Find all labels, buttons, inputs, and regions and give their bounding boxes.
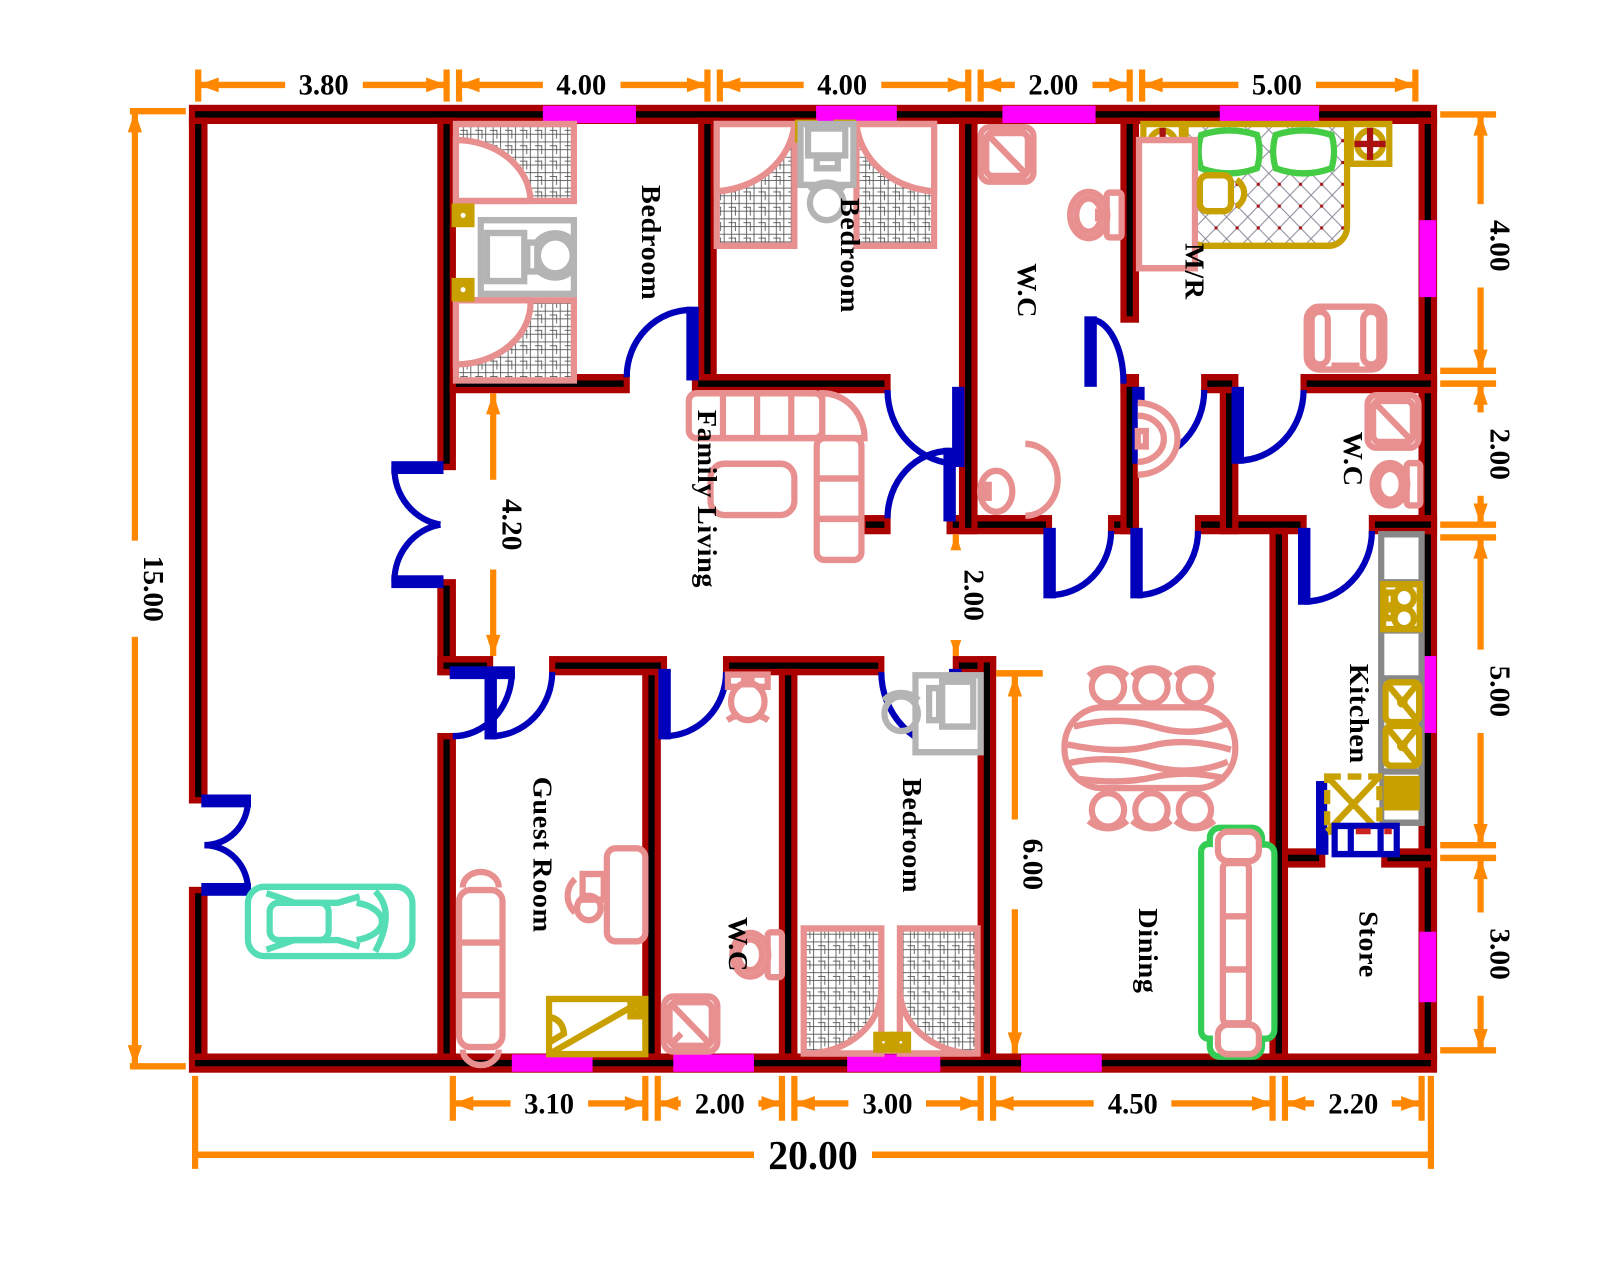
door-icon xyxy=(488,672,553,736)
bed xyxy=(456,300,574,380)
dim-right-1: 4.00 xyxy=(1484,220,1515,272)
door-icon xyxy=(1235,390,1304,461)
room-label-kitchen: Kitchen xyxy=(1343,664,1374,764)
stove-icon xyxy=(1383,584,1420,629)
car-icon xyxy=(248,887,413,956)
window-icon xyxy=(1223,109,1316,120)
dim-bottom-2: 2.00 xyxy=(695,1088,745,1121)
bed xyxy=(456,124,574,201)
dim-right-2: 2.00 xyxy=(1484,428,1515,480)
room-label-store: Store xyxy=(1353,911,1384,978)
window-icon xyxy=(515,1058,590,1069)
window-icon xyxy=(850,1058,937,1069)
room-label-family-living: Family Living xyxy=(691,410,722,588)
sink-icon xyxy=(1138,403,1178,475)
toilet-icon xyxy=(1070,192,1122,238)
dim-bottom-1: 3.10 xyxy=(524,1088,574,1121)
window-icon xyxy=(1024,1058,1099,1069)
door-icon xyxy=(1087,320,1123,384)
sink-icon xyxy=(980,444,1058,516)
door-icon xyxy=(661,672,726,736)
toilet-icon xyxy=(1373,463,1421,505)
computer-desk xyxy=(884,675,981,752)
door-icon xyxy=(1301,531,1372,602)
shower-icon xyxy=(664,996,717,1051)
dim-overall-width: 20.00 xyxy=(768,1132,857,1178)
room-label-wc-right: W.C xyxy=(1337,432,1368,487)
room-label-dining: Dining xyxy=(1132,908,1163,993)
dim-top-5: 5.00 xyxy=(1252,69,1302,102)
dish-rack xyxy=(1387,776,1417,811)
dim-bottom-4: 4.50 xyxy=(1108,1088,1158,1121)
room-label-bedroom-2: Bedroom xyxy=(834,198,865,313)
room-label-bedroom-3: Bedroom xyxy=(896,778,927,893)
bed xyxy=(856,124,934,246)
sofa xyxy=(459,872,502,1065)
floor-plan-svg: Bedroom Bedroom W.C M/R W.C Family Livin… xyxy=(0,0,1600,1280)
room-label-guest-room: Guest Room xyxy=(527,777,558,933)
shower-icon xyxy=(1368,395,1419,448)
double-door-icon xyxy=(394,464,440,585)
nightstand xyxy=(455,281,472,298)
nightstand xyxy=(876,1035,890,1050)
room-label-wc-top: W.C xyxy=(1011,263,1042,318)
bed xyxy=(804,928,882,1053)
dim-bottom-3: 3.00 xyxy=(863,1088,913,1121)
sink-icon xyxy=(727,675,768,721)
room-label-master-room: M/R xyxy=(1179,243,1210,300)
bed xyxy=(900,928,978,1053)
dim-right-4: 3.00 xyxy=(1484,928,1515,980)
room-label-bedroom-1: Bedroom xyxy=(635,185,666,300)
room-label-wc-bottom: W.C xyxy=(722,917,753,972)
nightstand xyxy=(455,207,472,224)
dim-dining-height: 6.00 xyxy=(1017,839,1048,891)
sofa xyxy=(1201,828,1274,1057)
plan-group: Bedroom Bedroom W.C M/R W.C Family Livin… xyxy=(119,68,1515,1178)
shower-icon xyxy=(981,127,1034,181)
dim-top-4: 2.00 xyxy=(1028,69,1078,102)
double-door-icon xyxy=(204,798,247,893)
window-icon xyxy=(1423,935,1434,999)
dim-top-2: 4.00 xyxy=(556,69,606,102)
window-icon xyxy=(1423,223,1434,294)
dim-right-3: 5.00 xyxy=(1484,666,1515,718)
door-icon xyxy=(1133,531,1198,595)
bed xyxy=(549,999,645,1054)
computer-desk xyxy=(481,220,574,294)
coffee-table xyxy=(711,464,795,515)
desk xyxy=(568,848,646,941)
door-icon xyxy=(453,670,512,737)
nightstand xyxy=(894,1035,908,1050)
refrigerator-icon xyxy=(1335,826,1397,854)
window-icon xyxy=(1006,109,1093,120)
dining-table xyxy=(1065,707,1236,788)
floor-plan-page: Bedroom Bedroom W.C M/R W.C Family Livin… xyxy=(0,0,1600,1280)
sink-icon xyxy=(1386,682,1420,765)
door-icon xyxy=(1046,531,1111,595)
dim-bottom-5: 2.20 xyxy=(1328,1088,1378,1121)
window-icon xyxy=(819,109,894,120)
door-icon xyxy=(627,310,696,377)
armchair xyxy=(1307,307,1385,370)
bed xyxy=(717,124,795,246)
dim-left-1: 15.00 xyxy=(137,556,168,622)
dim-family-living-height: 4.20 xyxy=(496,499,527,551)
nightstand xyxy=(1351,124,1390,164)
dim-top-3: 4.00 xyxy=(817,69,867,102)
window-icon xyxy=(546,109,633,120)
dim-hall-height: 2.00 xyxy=(958,569,989,621)
dim-top-1: 3.80 xyxy=(299,69,349,102)
window-icon xyxy=(676,1058,751,1069)
